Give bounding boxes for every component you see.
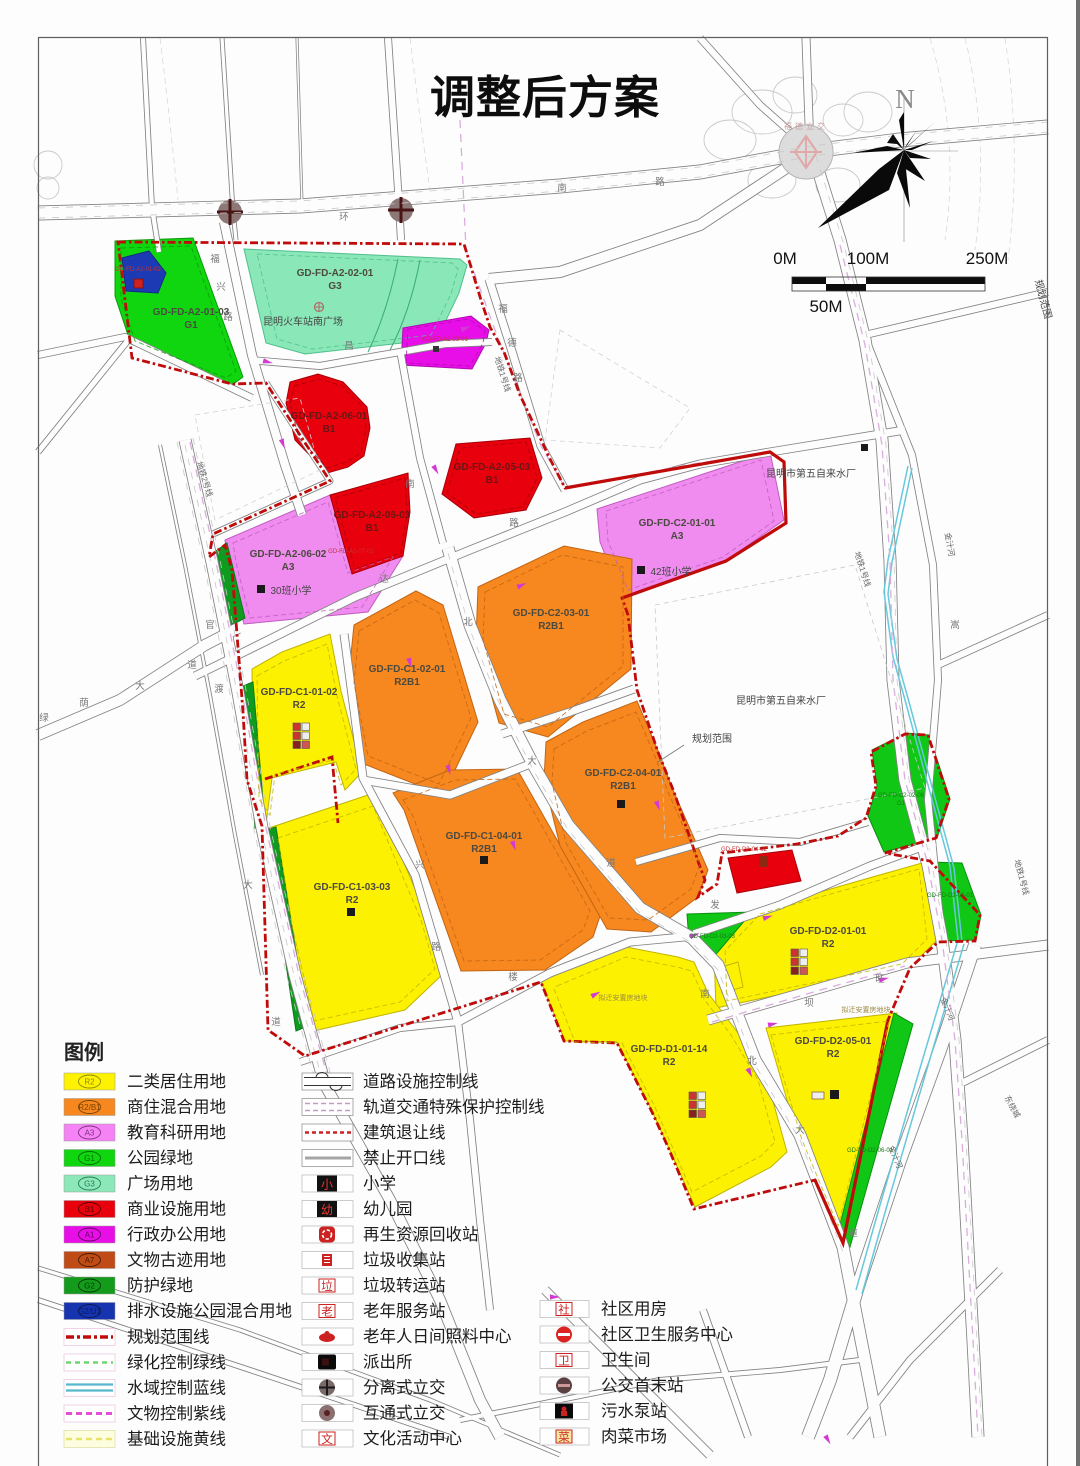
svg-text:GD-FD-C1-03-03: GD-FD-C1-03-03 [314,882,391,893]
svg-text:0M: 0M [773,249,797,268]
svg-text:道路设施控制线: 道路设施控制线 [363,1072,479,1091]
svg-text:小: 小 [321,1178,333,1192]
svg-text:广场用地: 广场用地 [127,1174,193,1193]
svg-text:渡: 渡 [214,683,224,695]
svg-text:再生资源回收站: 再生资源回收站 [363,1225,479,1244]
svg-text:福: 福 [498,303,508,315]
svg-text:官: 官 [205,619,215,631]
svg-text:GD-FD-A2-07-01: GD-FD-A2-07-01 [328,549,374,555]
svg-text:42班小学: 42班小学 [650,565,691,578]
svg-text:老: 老 [321,1306,333,1319]
svg-text:R2: R2 [346,895,359,906]
svg-text:卫: 卫 [558,1356,570,1368]
svg-text:GD-FD-D2-01-01: GD-FD-D2-01-01 [790,926,867,937]
svg-text:R2: R2 [822,939,835,950]
svg-text:B1: B1 [366,523,379,534]
svg-text:R2: R2 [827,1049,840,1060]
svg-text:楼: 楼 [508,971,518,983]
svg-text:GD-FD-A2-06-01: GD-FD-A2-06-01 [291,411,368,422]
svg-text:南: 南 [700,988,710,1000]
svg-text:文化活动中心: 文化活动中心 [363,1429,462,1448]
svg-text:N: N [895,84,915,114]
svg-text:B1: B1 [486,475,499,486]
svg-text:GD-FD-C2-01-01: GD-FD-C2-01-01 [639,518,716,529]
svg-text:R2B1: R2B1 [538,621,564,632]
svg-text:B1: B1 [323,424,336,435]
svg-text:30班小学: 30班小学 [270,584,311,597]
svg-text:绿化控制绿线: 绿化控制绿线 [127,1353,226,1372]
svg-text:菜: 菜 [558,1431,570,1444]
svg-text:福德立交: 福德立交 [784,121,828,131]
svg-text:达: 达 [379,573,389,585]
svg-text:250M: 250M [966,249,1009,268]
svg-text:排水设施公园混合用地: 排水设施公园混合用地 [127,1302,292,1321]
svg-text:GD-FD-A2-03-01: GD-FD-A2-03-01 [422,337,468,343]
svg-text:GD-FD-C1-04-01: GD-FD-C1-04-01 [446,831,523,842]
svg-text:文物古迹用地: 文物古迹用地 [127,1251,226,1270]
svg-text:发: 发 [710,899,720,911]
svg-text:绿: 绿 [39,712,49,724]
svg-text:行政办公用地: 行政办公用地 [127,1225,226,1244]
svg-text:公交首末站: 公交首末站 [601,1376,684,1395]
svg-text:A3: A3 [282,562,295,573]
svg-text:昆明市第五自来水厂: 昆明市第五自来水厂 [766,467,856,480]
svg-text:GD-FD-C2-03-01: GD-FD-C2-03-01 [513,608,590,619]
svg-text:昆明火车站南广场: 昆明火车站南广场 [263,315,343,328]
svg-text:老年服务站: 老年服务站 [363,1302,446,1321]
svg-text:旺: 旺 [875,974,885,985]
svg-text:GD-FD-D2-04-02: GD-FD-D2-04-02 [721,847,768,853]
svg-text:商住混合用地: 商住混合用地 [127,1098,226,1117]
svg-text:幼: 幼 [321,1203,333,1217]
svg-text:路: 路 [655,176,665,188]
svg-text:公园绿地: 公园绿地 [127,1149,193,1168]
svg-text:污水泵站: 污水泵站 [601,1402,667,1421]
svg-text:南: 南 [557,182,567,194]
svg-text:道: 道 [187,659,197,671]
svg-text:A3: A3 [671,531,684,542]
svg-text:水域控制蓝线: 水域控制蓝线 [127,1379,226,1398]
svg-text:基础设施黄线: 基础设施黄线 [127,1430,226,1449]
svg-text:A7: A7 [85,1256,95,1265]
svg-text:GD-FD-C2-02-06: GD-FD-C2-02-06 [878,793,925,799]
svg-text:B1: B1 [85,1205,95,1214]
svg-text:GD-FD-A2-06-03: GD-FD-A2-06-03 [334,510,411,521]
svg-text:GD-FD-A2-01-03: GD-FD-A2-01-03 [153,307,230,318]
svg-text:100M: 100M [847,249,890,268]
svg-text:拟迁安置房地块: 拟迁安置房地块 [842,1005,891,1014]
svg-text:G2/U1: G2/U1 [78,1307,102,1316]
svg-text:GD-FD-D2-02-01: GD-FD-D2-02-01 [927,893,974,899]
svg-text:社区卫生服务中心: 社区卫生服务中心 [601,1325,733,1344]
svg-text:GD-FD-A2-02-01: GD-FD-A2-02-01 [297,268,374,279]
svg-text:GD-FD-A2-05-03: GD-FD-A2-05-03 [454,462,531,473]
svg-text:环: 环 [339,212,349,223]
svg-text:GD-FD-C1-01-02: GD-FD-C1-01-02 [261,687,338,698]
svg-text:GD-FD-D2-05-01: GD-FD-D2-05-01 [795,1036,872,1047]
svg-text:G2: G2 [84,1282,95,1291]
svg-text:路: 路 [513,372,523,384]
svg-text:大: 大 [243,879,253,891]
svg-text:福: 福 [210,253,220,265]
svg-text:荫: 荫 [79,697,89,709]
svg-text:路: 路 [509,517,519,529]
svg-text:拟迁安置房地块: 拟迁安置房地块 [599,993,648,1002]
svg-text:建筑退让线: 建筑退让线 [363,1123,446,1142]
svg-text:防护绿地: 防护绿地 [127,1276,193,1295]
svg-text:大: 大 [135,680,145,692]
svg-text:轨道交通特殊保护控制线: 轨道交通特殊保护控制线 [363,1098,545,1117]
svg-text:幼儿园: 幼儿园 [363,1200,413,1219]
svg-text:GD-FD-A2-06-02: GD-FD-A2-06-02 [250,549,327,560]
svg-text:老年人日间照料中心: 老年人日间照料中心 [363,1327,512,1346]
svg-text:教育科研用地: 教育科研用地 [127,1123,226,1142]
svg-text:路: 路 [431,941,441,953]
svg-text:兴: 兴 [415,860,425,871]
svg-text:商业设施用地: 商业设施用地 [127,1200,226,1219]
svg-text:德: 德 [507,337,517,349]
svg-text:规划范围线: 规划范围线 [127,1328,210,1347]
svg-text:南: 南 [405,478,415,490]
svg-text:社: 社 [558,1303,570,1317]
svg-text:互通式立交: 互通式立交 [363,1404,446,1423]
svg-text:嵩: 嵩 [950,620,960,631]
svg-text:北: 北 [463,617,473,628]
svg-text:R2/B1: R2/B1 [78,1103,101,1112]
svg-text:G3: G3 [328,281,342,292]
svg-text:垃圾转运站: 垃圾转运站 [363,1276,446,1295]
svg-text:R2: R2 [84,1078,95,1087]
svg-text:A1: A1 [85,1231,95,1240]
svg-text:R2: R2 [663,1057,676,1068]
svg-text:R2: R2 [293,700,306,711]
svg-text:肉菜市场: 肉菜市场 [601,1427,667,1446]
svg-text:大: 大 [795,1124,805,1136]
svg-text:派出所: 派出所 [363,1353,413,1372]
svg-text:50M: 50M [809,297,842,316]
svg-text:G3: G3 [84,1180,95,1189]
svg-text:垃: 垃 [321,1279,333,1293]
svg-text:GD-FD-A2-01-02: GD-FD-A2-01-02 [115,267,161,273]
svg-text:昆明市第五自来水厂: 昆明市第五自来水厂 [736,694,826,707]
svg-text:大: 大 [527,755,537,767]
svg-text:文物控制紫线: 文物控制紫线 [127,1404,226,1423]
svg-text:社区用房: 社区用房 [601,1300,667,1319]
svg-text:图例: 图例 [64,1040,104,1064]
svg-text:R2B1: R2B1 [471,844,497,855]
svg-text:垃圾收集站: 垃圾收集站 [363,1251,446,1270]
svg-text:兴: 兴 [216,282,226,293]
svg-text:道: 道 [606,857,616,869]
svg-text:路: 路 [223,311,233,323]
svg-text:R2B1: R2B1 [610,781,636,792]
svg-text:道: 道 [271,1016,281,1028]
svg-text:GD-FD-C2-04-01: GD-FD-C2-04-01 [585,768,662,779]
svg-text:调整后方案: 调整后方案 [430,72,660,123]
svg-text:文: 文 [321,1432,333,1446]
svg-text:北: 北 [747,1056,757,1067]
svg-text:规划范围: 规划范围 [692,732,732,745]
svg-text:坝: 坝 [804,998,814,1009]
svg-text:昌: 昌 [344,341,354,352]
svg-text:G1: G1 [84,1154,95,1163]
svg-text:道: 道 [848,1227,858,1239]
svg-text:G1: G1 [184,320,198,331]
svg-text:卫生间: 卫生间 [601,1351,651,1370]
svg-text:GD-FD-D2-06-01: GD-FD-D2-06-01 [847,1148,894,1154]
svg-text:G1: G1 [897,801,906,807]
svg-text:二类居住用地: 二类居住用地 [127,1072,226,1091]
svg-text:A3: A3 [85,1129,95,1138]
svg-text:GD-FD-D1-01-14: GD-FD-D1-01-14 [631,1044,708,1055]
svg-text:小学: 小学 [363,1174,396,1193]
svg-text:GD-FD-C1-02-01: GD-FD-C1-02-01 [369,664,446,675]
svg-text:GD-FD-D2-03-03: GD-FD-D2-03-03 [689,934,736,940]
svg-text:R2B1: R2B1 [394,677,420,688]
svg-text:分离式立交: 分离式立交 [363,1378,446,1397]
svg-text:禁止开口线: 禁止开口线 [363,1149,446,1168]
